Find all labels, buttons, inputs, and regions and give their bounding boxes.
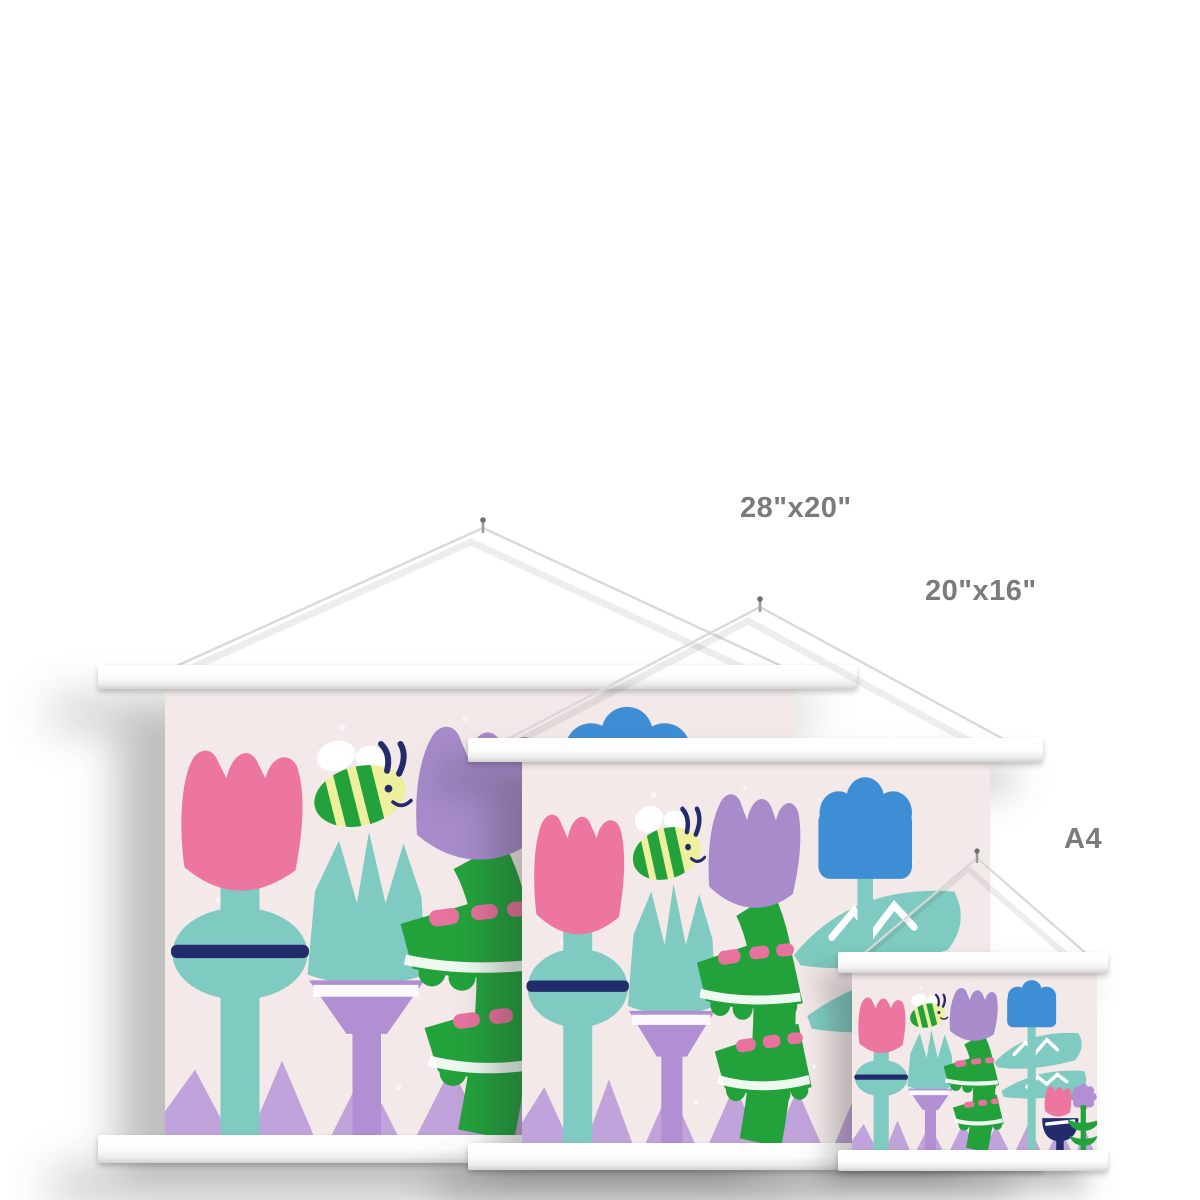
size-label-20x16: 20"x16" [925,575,1037,608]
hanger-bar-bottom-large [98,1135,857,1163]
hanger-bar-bottom-small [838,1150,1108,1171]
nail-icon [757,596,763,612]
poster-paper-small [852,973,1097,1150]
hanger-bar-top-medium [468,738,1043,762]
nail-icon [974,848,979,863]
size-label-28x20: 28"x20" [740,492,852,525]
hanger-bar-top-large [98,665,857,689]
hanger-bar-bottom-medium [468,1143,1043,1170]
hanger-bar-top-small [838,952,1108,973]
flower-garden-artwork [852,973,1097,1150]
poster-paper-medium [522,762,990,1143]
flower-garden-artwork [522,762,990,1143]
flower-garden-artwork [165,689,795,1135]
poster-paper-large [165,689,795,1135]
nail-icon [480,517,486,533]
size-label-a4: A4 [1064,823,1102,856]
poster-mockup-scene: 28"x20" 20"x16" A4 [0,0,1200,1200]
